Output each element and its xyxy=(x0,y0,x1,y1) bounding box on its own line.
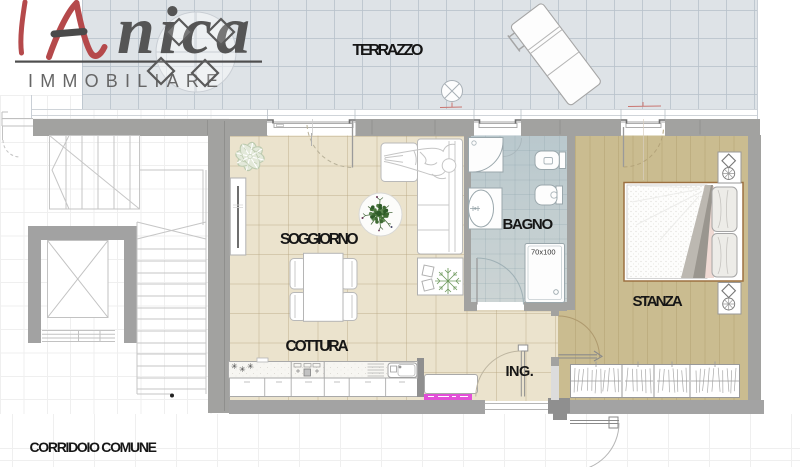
svg-text:70x100: 70x100 xyxy=(531,248,556,257)
svg-text:✳: ✳ xyxy=(231,362,238,371)
svg-text:✳: ✳ xyxy=(239,365,246,374)
svg-text:✳: ✳ xyxy=(247,362,254,371)
